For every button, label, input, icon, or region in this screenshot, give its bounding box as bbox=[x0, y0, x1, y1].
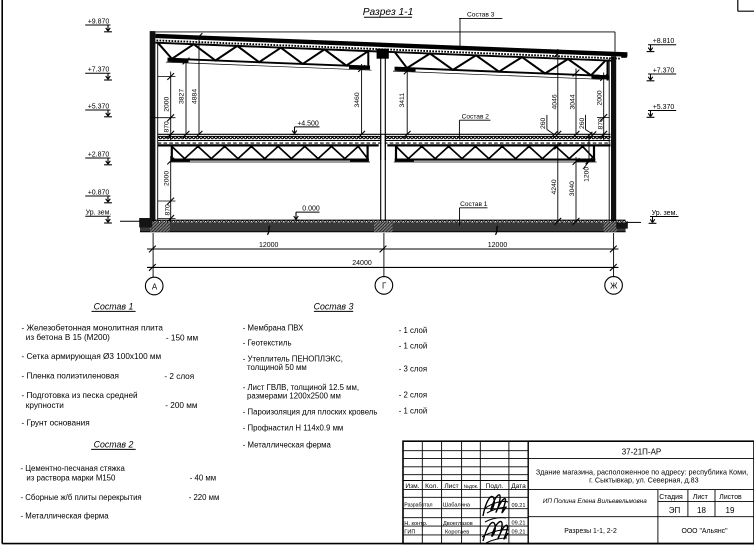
svg-text:Состав 1: Состав 1 bbox=[94, 301, 134, 311]
svg-text:+8.810: +8.810 bbox=[653, 38, 675, 45]
svg-text:+5.370: +5.370 bbox=[653, 104, 675, 111]
svg-text:Дата: Дата bbox=[511, 483, 526, 490]
svg-text:ИП Полина Елена Вильевельмовна: ИП Полина Елена Вильевельмовна bbox=[543, 498, 647, 505]
svg-text:Разрезы 1-1, 2-2: Разрезы 1-1, 2-2 bbox=[564, 528, 617, 535]
svg-text:+7.370: +7.370 bbox=[653, 67, 675, 74]
svg-text:12000: 12000 bbox=[488, 242, 508, 249]
svg-text:- Профнастил Н 114х0.9 мм: - Профнастил Н 114х0.9 мм bbox=[243, 424, 343, 433]
svg-text:Ур. зем.: Ур. зем. bbox=[86, 210, 112, 217]
svg-text:Коротаев: Коротаев bbox=[445, 529, 469, 535]
svg-text:3460: 3460 bbox=[354, 92, 361, 107]
svg-text:- 1 слой: - 1 слой bbox=[399, 326, 428, 335]
svg-text:3827: 3827 bbox=[179, 89, 186, 104]
svg-text:Листов: Листов bbox=[719, 494, 742, 501]
svg-text:ЭП: ЭП bbox=[669, 506, 681, 515]
svg-text:2000: 2000 bbox=[163, 171, 170, 186]
svg-text:- Геотекстиль: - Геотекстиль bbox=[243, 339, 292, 348]
svg-text:2000: 2000 bbox=[163, 96, 170, 111]
svg-text:+0.870: +0.870 bbox=[88, 189, 110, 196]
svg-text:- Железобетонная монолитная п: - Железобетонная монолитная плита bbox=[22, 323, 164, 332]
svg-text:- Подготовка из песка средней: - Подготовка из песка средней bbox=[22, 391, 138, 400]
svg-text:из бетона В 15 (М200): из бетона В 15 (М200) bbox=[26, 333, 110, 342]
svg-text:Н. контр.: Н. контр. bbox=[404, 521, 428, 527]
svg-text:№док.: №док. bbox=[464, 484, 479, 490]
svg-text:870: 870 bbox=[597, 118, 604, 130]
svg-text:- 40 мм: - 40 мм bbox=[190, 474, 216, 483]
svg-text:+2.870: +2.870 bbox=[88, 151, 110, 158]
svg-text:3040: 3040 bbox=[569, 181, 576, 196]
svg-text:- Пленка полиэтиленовая: - Пленка полиэтиленовая bbox=[22, 372, 119, 381]
svg-text:Лист: Лист bbox=[444, 483, 458, 490]
svg-text:870: 870 bbox=[164, 204, 171, 216]
svg-text:870: 870 bbox=[163, 121, 170, 133]
svg-text:1200: 1200 bbox=[583, 167, 590, 182]
svg-text:- 220 мм: - 220 мм bbox=[189, 493, 220, 502]
svg-text:- 2 слоя: - 2 слоя bbox=[164, 372, 194, 381]
svg-text:ГИП: ГИП bbox=[404, 529, 415, 535]
svg-text:260: 260 bbox=[540, 117, 547, 129]
svg-text:+9.870: +9.870 bbox=[88, 18, 110, 25]
svg-text:3411: 3411 bbox=[399, 93, 406, 108]
svg-text:19: 19 bbox=[726, 506, 735, 515]
svg-text:24000: 24000 bbox=[352, 260, 372, 267]
svg-text:37-21П-АР: 37-21П-АР bbox=[622, 448, 662, 457]
svg-text:- Металлическая ферма: - Металлическая ферма bbox=[243, 441, 332, 450]
svg-text:г. Сыктывкар, ул. Северная, д.: г. Сыктывкар, ул. Северная, д.83 bbox=[589, 475, 698, 484]
svg-text:Состав 3: Состав 3 bbox=[314, 301, 354, 311]
svg-text:+5.370: +5.370 bbox=[88, 103, 110, 110]
svg-text:- 1 слой: - 1 слой bbox=[399, 342, 428, 351]
svg-text:- Грунт основания: - Грунт основания bbox=[22, 418, 90, 427]
svg-text:09.21: 09.21 bbox=[512, 503, 526, 509]
svg-text:3044: 3044 bbox=[570, 94, 577, 109]
svg-text:12000: 12000 bbox=[259, 242, 279, 249]
svg-text:09.21: 09.21 bbox=[512, 530, 526, 536]
svg-text:Состав 3: Состав 3 bbox=[467, 12, 495, 19]
svg-text:Ж: Ж bbox=[610, 282, 618, 291]
svg-text:Состав 2: Состав 2 bbox=[462, 113, 490, 120]
svg-text:из раствора марки М150: из раствора марки М150 bbox=[26, 474, 116, 483]
svg-text:Г: Г bbox=[382, 282, 387, 291]
svg-text:Кол.: Кол. bbox=[425, 483, 438, 490]
svg-text:- Цементно-песчаная стяжка: - Цементно-песчаная стяжка bbox=[21, 464, 126, 473]
svg-text:09.21: 09.21 bbox=[512, 521, 526, 527]
svg-text:- Мембрана ПВХ: - Мембрана ПВХ bbox=[243, 324, 304, 333]
svg-text:Двоеглазов: Двоеглазов bbox=[443, 521, 473, 527]
svg-text:- 2 слоя: - 2 слоя bbox=[399, 391, 427, 400]
svg-text:4240: 4240 bbox=[551, 179, 558, 194]
svg-text:- Сборные ж/б плиты перекрытия: - Сборные ж/б плиты перекрытия bbox=[21, 493, 142, 502]
svg-text:- Сетка армирующая Ø3 100х100: - Сетка армирующая Ø3 100х100 мм bbox=[22, 352, 162, 361]
svg-text:0.000: 0.000 bbox=[302, 205, 320, 212]
svg-text:А: А bbox=[152, 282, 158, 291]
svg-text:Подл.: Подл. bbox=[486, 483, 504, 490]
svg-text:- 3 слоя: - 3 слоя bbox=[399, 365, 427, 374]
svg-text:Шабалина: Шабалина bbox=[443, 503, 471, 509]
svg-text:+4.500: +4.500 bbox=[297, 120, 319, 127]
svg-text:Стадия: Стадия bbox=[659, 494, 683, 501]
svg-text:Состав 2: Состав 2 bbox=[94, 439, 134, 449]
svg-text:размерами 1200х2500 мм: размерами 1200х2500 мм bbox=[247, 392, 341, 401]
svg-text:- Металлическая ферма: - Металлическая ферма bbox=[21, 512, 110, 521]
svg-text:Состав 1: Состав 1 bbox=[460, 201, 488, 208]
svg-text:- 150 мм: - 150 мм bbox=[166, 333, 199, 342]
svg-text:- 200 мм: - 200 мм bbox=[165, 401, 198, 410]
svg-text:+7.370: +7.370 bbox=[88, 67, 110, 74]
svg-text:2000: 2000 bbox=[596, 90, 603, 105]
svg-text:крупности: крупности bbox=[26, 401, 64, 410]
svg-text:Ур. зем.: Ур. зем. bbox=[652, 210, 678, 217]
svg-text:4884: 4884 bbox=[191, 89, 198, 104]
svg-text:Изм.: Изм. bbox=[405, 483, 419, 490]
svg-text:Лист: Лист bbox=[693, 494, 709, 501]
svg-text:18: 18 bbox=[697, 506, 706, 515]
svg-text:260: 260 bbox=[579, 117, 586, 129]
svg-text:- Пароизоляция для плоских кро: - Пароизоляция для плоских кровель bbox=[243, 408, 378, 417]
svg-text:- 1 слой: - 1 слой bbox=[399, 406, 428, 415]
svg-text:Разрез 1-1: Разрез 1-1 bbox=[363, 7, 413, 18]
svg-text:толщиной 50 мм: толщиной 50 мм bbox=[247, 363, 307, 372]
svg-text:Разработал: Разработал bbox=[404, 503, 432, 509]
svg-text:ООО "Альянс": ООО "Альянс" bbox=[681, 528, 728, 535]
svg-text:4046: 4046 bbox=[551, 94, 558, 109]
